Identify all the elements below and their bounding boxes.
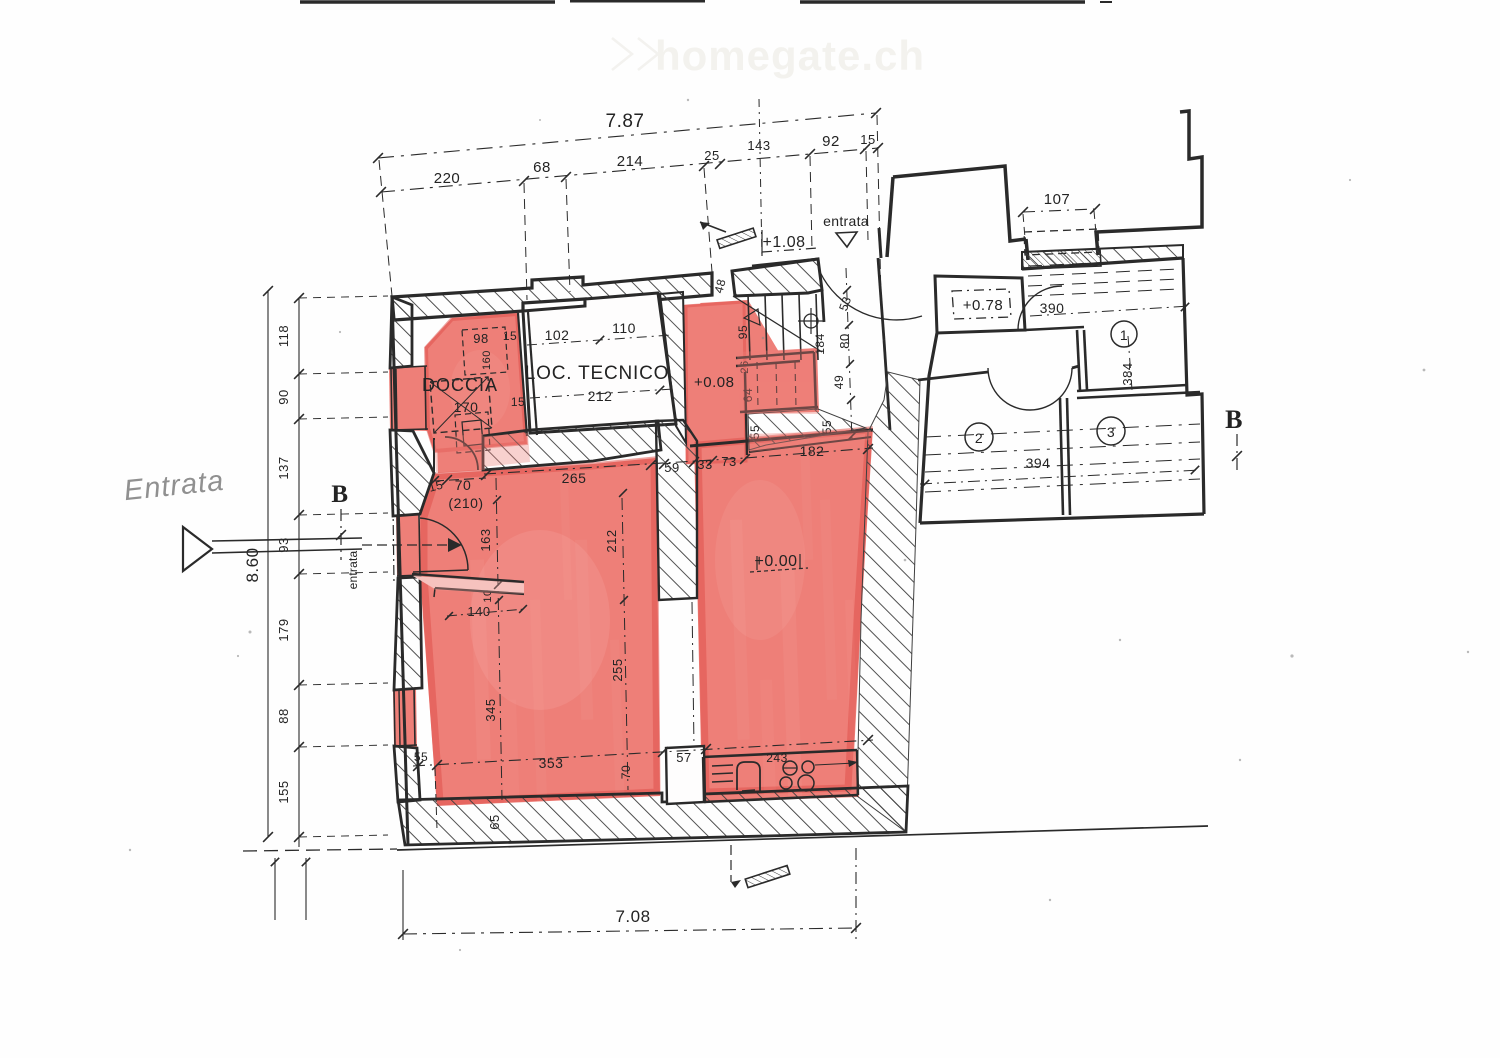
svg-text:220: 220 [434,170,461,187]
svg-text:170: 170 [454,399,479,415]
svg-text:345: 345 [483,698,498,721]
svg-text:212: 212 [588,388,613,404]
svg-text:B: B [1225,405,1243,434]
svg-text:353: 353 [539,755,564,771]
svg-text:15: 15 [511,395,525,409]
svg-text:137: 137 [276,456,291,479]
svg-text:255: 255 [610,658,625,681]
svg-text:2: 2 [975,430,983,446]
svg-text:15: 15 [503,329,517,343]
svg-text:(210): (210) [448,495,483,511]
svg-text:118: 118 [276,325,291,347]
svg-text:212: 212 [604,529,619,552]
svg-text:163: 163 [478,528,493,551]
svg-text:49: 49 [832,375,846,389]
svg-text:107: 107 [1044,191,1071,208]
svg-text:384: 384 [1120,362,1135,385]
svg-text:243: 243 [766,751,788,765]
svg-text:179: 179 [276,618,291,641]
svg-text:160: 160 [481,350,493,370]
svg-text:92: 92 [822,133,840,150]
svg-text:143: 143 [747,138,770,153]
svg-text:70: 70 [455,477,472,493]
svg-text:1: 1 [1120,327,1128,343]
svg-text:55: 55 [414,750,428,764]
svg-text:390: 390 [1040,300,1065,316]
svg-text:+1.08: +1.08 [763,234,806,251]
svg-text:3: 3 [1107,424,1115,440]
svg-text:394: 394 [1026,455,1051,471]
svg-text:214: 214 [617,153,644,170]
svg-text:98: 98 [473,331,488,346]
svg-text:73: 73 [721,454,736,469]
svg-text:7.08: 7.08 [615,907,650,926]
svg-text:15: 15 [860,132,875,147]
svg-text:88: 88 [276,708,291,723]
svg-text:7.87: 7.87 [606,111,645,132]
svg-text:25: 25 [704,148,719,163]
svg-text:entrata: entrata [346,550,360,589]
svg-text:+0.00: +0.00 [755,553,798,570]
svg-text:90: 90 [276,389,291,404]
svg-text:110: 110 [612,320,636,336]
svg-text:70: 70 [619,765,633,779]
svg-text:68: 68 [533,159,551,176]
svg-text:102: 102 [545,327,570,343]
svg-text:homegate.ch: homegate.ch [655,32,925,79]
svg-text:155: 155 [276,780,291,803]
svg-text:B: B [331,481,348,508]
svg-text:+0.08: +0.08 [694,374,734,391]
svg-text:80: 80 [837,333,852,348]
svg-text:265: 265 [562,470,587,486]
svg-text:33: 33 [697,457,712,472]
svg-text:95: 95 [736,325,750,339]
svg-text:entrata: entrata [823,213,869,229]
svg-text:LOC. TECNICO: LOC. TECNICO [525,363,669,384]
svg-text:140: 140 [467,604,490,619]
svg-text:+0.78: +0.78 [963,297,1003,314]
svg-text:57: 57 [676,750,691,765]
